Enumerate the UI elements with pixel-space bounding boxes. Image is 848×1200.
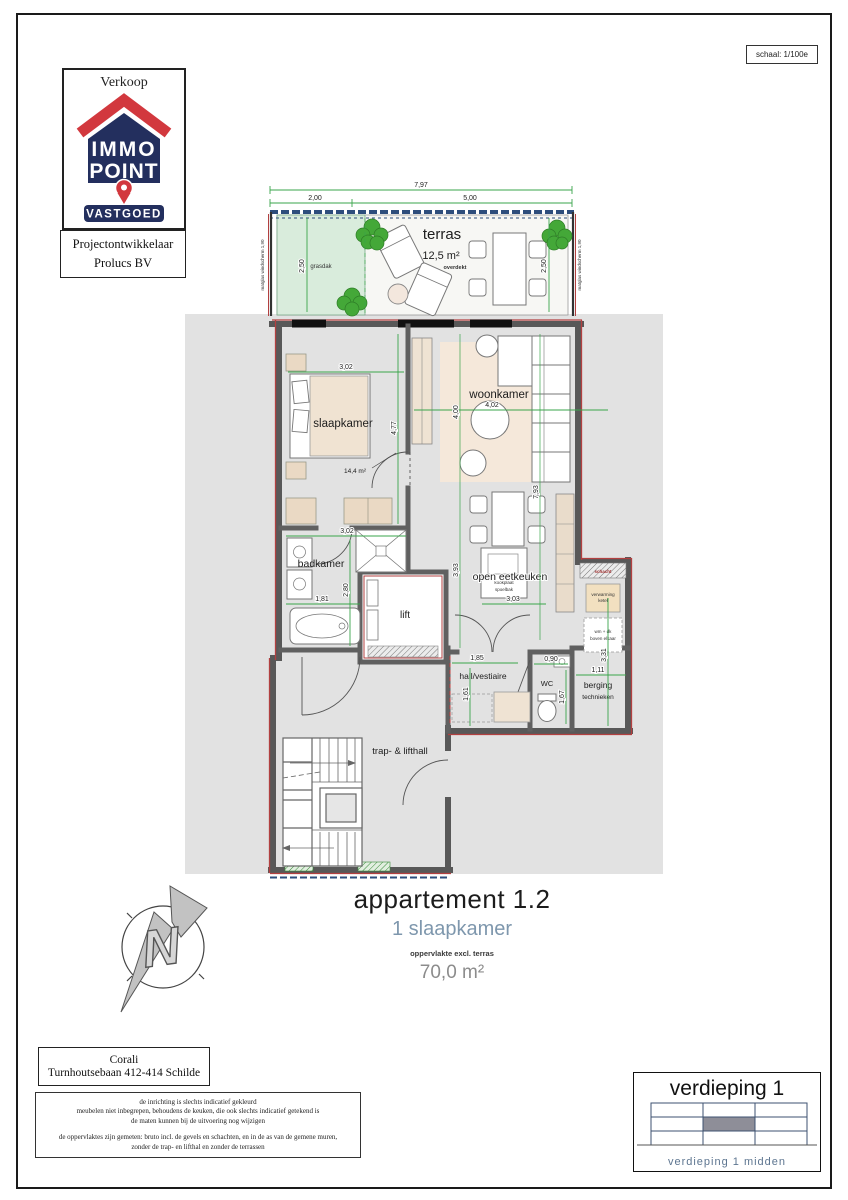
storage-label-2: technieken	[582, 694, 614, 701]
stairhall-label: trap- & lifthall	[372, 746, 427, 757]
boiler-label-2: ketel	[598, 598, 608, 603]
dim-slaap-h: 4,77	[391, 421, 398, 435]
stairwell	[282, 738, 362, 866]
kitchen-counter	[556, 494, 574, 612]
window-frames	[292, 320, 512, 328]
wc-label: WC	[541, 679, 554, 688]
terrace-note: overdekt	[444, 265, 467, 271]
dim-bad-tub: 1,81	[315, 596, 329, 603]
floor-title: verdieping 1	[634, 1077, 820, 1101]
facade-window	[358, 862, 390, 871]
title-block: appartement 1.2 1 slaapkamer oppervlakte…	[252, 884, 652, 984]
dim-terras-depth-left: 2,50	[299, 259, 306, 273]
dim-wc-h: 1,67	[559, 690, 566, 704]
dim-hall-w: 1,85	[470, 655, 484, 662]
dim-woon-right: 7,93	[533, 485, 540, 499]
disclaimer-line: de oppervlaktes zijn gemeten: bruto incl…	[36, 1133, 360, 1143]
washer-label-1: wm + dk	[595, 629, 613, 634]
dining-table	[492, 492, 524, 546]
plan-sheet: schaal: 1/100e Verkoop IMMO POINT VASTGO…	[0, 0, 848, 1200]
dim-bad-w: 3,02	[340, 528, 354, 535]
dim-wc-w: 0,90	[544, 656, 558, 663]
wardrobe	[286, 498, 316, 524]
dim-berging-h: 3,31	[601, 648, 608, 662]
side-table	[476, 335, 498, 357]
screen-label-left: matglas windscherm 1,90	[260, 239, 265, 291]
coat-closet	[494, 692, 530, 722]
disclaimer-line: de inrichting is slechts indicatief gekl…	[36, 1098, 360, 1108]
apartment-title: appartement 1.2	[252, 884, 652, 915]
terrace: matglas windscherm 1,90 matglas windsche…	[260, 212, 582, 317]
floor-caption: verdieping 1 midden	[634, 1156, 820, 1168]
boiler-label-1: verwarming	[591, 592, 615, 597]
green-roof-label: grasdak	[310, 264, 332, 270]
dim-terras-right: 5,00	[463, 195, 477, 202]
dim-terras-depth-right: 2,50	[541, 259, 548, 273]
dining-table	[493, 233, 526, 305]
kitchen-furniture: kookplaat spoelbak	[470, 492, 574, 612]
bedroom-label: slaapkamer	[313, 418, 373, 430]
lift-label: lift	[400, 610, 410, 621]
dim-berging-w: 1,11	[591, 667, 604, 674]
dim-slaap-w: 3,02	[339, 364, 353, 371]
floor-plan-drawing: matglas windscherm 1,90 matglas windsche…	[0, 0, 848, 1200]
dim-woon-h: 4,00	[453, 405, 460, 419]
terrace-area: 12,5 m²	[422, 250, 460, 262]
dim-hall-h: 1,61	[463, 687, 470, 701]
plant	[460, 450, 486, 476]
apartment-area: 70,0 m²	[252, 962, 652, 984]
disclaimer-line: zonder de trap- en lifthal en zonder de …	[36, 1143, 360, 1153]
livingroom-label: woonkamer	[468, 389, 529, 401]
terrace-label: terras	[423, 226, 461, 243]
north-arrow: N	[121, 886, 207, 1012]
project-name: Corali	[39, 1054, 209, 1066]
hall-label: hall/vestiaire	[459, 671, 507, 681]
bathroom-label: badkamer	[298, 558, 345, 570]
floor-diagram	[634, 1101, 820, 1151]
apartment-subtitle: 1 slaapkamer	[252, 918, 652, 941]
shaft-label: schacht	[594, 569, 612, 574]
dim-eet-w: 3,03	[506, 596, 520, 603]
disclaimer-line: meubelen niet inbegrepen, behoudens de k…	[36, 1107, 360, 1117]
dim-bad-h: 2,80	[343, 583, 350, 597]
area-note: oppervlakte excl. terras	[252, 949, 652, 958]
dim-eet-h: 3,93	[453, 563, 460, 577]
project-address: Turnhoutsebaan 412-414 Schilde	[39, 1067, 209, 1079]
washer-label-2: boven elkaar	[590, 636, 616, 641]
sink-label: spoelbak	[495, 587, 514, 592]
bedroom-area: 14,4 m²	[344, 468, 367, 475]
kitchen-label: open eetkeuken	[473, 571, 548, 583]
bathtub	[290, 608, 360, 644]
floor-indicator: verdieping 1 verdieping 1 midden	[633, 1072, 821, 1172]
disclaimer-line: de maten kunnen bij de uitvoering nog wi…	[36, 1117, 360, 1127]
disclaimer-box: de inrichting is slechts indicatief gekl…	[35, 1092, 361, 1158]
project-address-box: Corali Turnhoutsebaan 412-414 Schilde	[38, 1047, 210, 1086]
side-table	[388, 284, 408, 304]
dim-terras-total: 7,97	[414, 182, 428, 189]
highlighted-unit	[703, 1117, 755, 1131]
dim-terras-left: 2,00	[308, 195, 322, 202]
lift-shaft: lift	[360, 572, 446, 662]
dim-woon-w: 4,02	[485, 402, 499, 409]
washer-box	[584, 618, 622, 652]
screen-label-right: matglas windscherm 1,90	[577, 239, 582, 291]
